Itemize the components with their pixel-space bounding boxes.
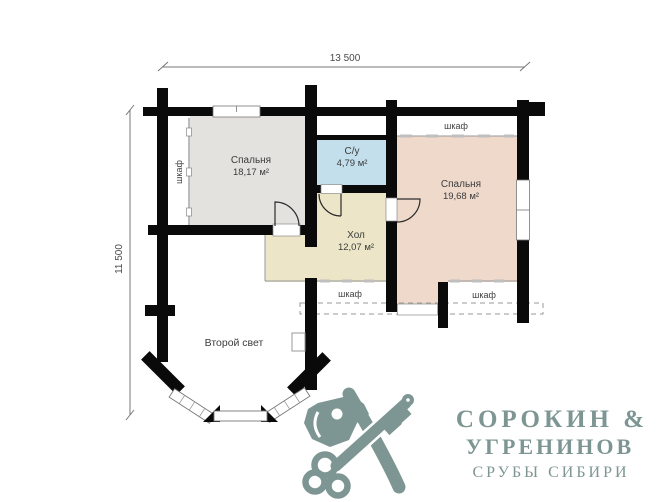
room-name: Хол — [338, 230, 374, 242]
entrance-threshold — [398, 304, 438, 315]
door-opening-bedroom1 — [273, 224, 300, 236]
closet-label-left: шкаф — [173, 160, 185, 184]
wall-right-lower — [517, 240, 529, 323]
closet-left-door-line — [187, 118, 192, 225]
logo-text-line1: СОРОКИН & — [456, 406, 648, 434]
window-bay-bottom — [214, 411, 267, 421]
chimney-block — [292, 333, 305, 351]
room-area: 18,17 м² — [231, 167, 271, 179]
room-area: 19,68 м² — [441, 191, 481, 203]
logo-text-line3: СРУБЫ СИБИРИ — [472, 464, 629, 482]
wall-mid-horizontal-left — [148, 225, 273, 235]
wall-bedroom1-bathroom — [305, 85, 317, 247]
closet-label-bottom-right: шкаф — [472, 289, 496, 301]
wall-left-cross-stub — [145, 305, 175, 316]
room-label-bedroom1: Спальня 18,17 м² — [231, 155, 271, 179]
closet-label-top-right: шкаф — [444, 120, 468, 132]
door-opening-bathroom — [321, 185, 342, 194]
wall-lower-vertical-right — [438, 282, 448, 328]
wall-bathroom-bottom-right — [342, 185, 397, 193]
wall-top — [143, 107, 529, 116]
wall-bathroom-top — [317, 135, 397, 140]
floor-plan-page: 13 500 11 500 Спальня 18,17 м² С/у 4,79 … — [0, 0, 667, 502]
dimension-width-label: 13 500 — [330, 53, 361, 65]
room-hall-fill-mid — [305, 247, 317, 282]
room-bedroom2-entry-fill — [397, 282, 438, 305]
room-label-bedroom2: Спальня 19,68 м² — [441, 179, 481, 203]
room-fills — [190, 115, 517, 305]
wall-mid-horizontal-right — [300, 225, 317, 235]
logo-text-line2: УГРЕНИНОВ — [466, 434, 634, 460]
room-label-bathroom: С/у 4,79 м² — [337, 146, 368, 170]
closet-label-bottom-left: шкаф — [338, 288, 362, 300]
room-area: 4,79 м² — [337, 158, 368, 170]
wall-top-right-stub — [529, 102, 545, 116]
second-light-label: Второй свет — [205, 337, 264, 349]
wall-right-upper — [517, 100, 529, 180]
room-area: 12,07 м² — [338, 242, 374, 254]
room-label-hall: Хол 12,07 м² — [338, 230, 374, 254]
wall-bathroom-bedroom2-upper — [386, 100, 397, 198]
wall-bathroom-bedroom2-lower — [386, 221, 397, 312]
door-opening-bedroom2 — [386, 198, 397, 221]
wall-bathroom-bottom-left — [315, 185, 321, 193]
room-name: Спальня — [231, 155, 271, 167]
room-name: С/у — [337, 146, 368, 158]
room-name: Спальня — [441, 179, 481, 191]
room-bedroom2-fill — [397, 136, 517, 282]
axe-and-key-icon — [304, 394, 414, 496]
dimension-height-label: 11 500 — [114, 244, 126, 274]
